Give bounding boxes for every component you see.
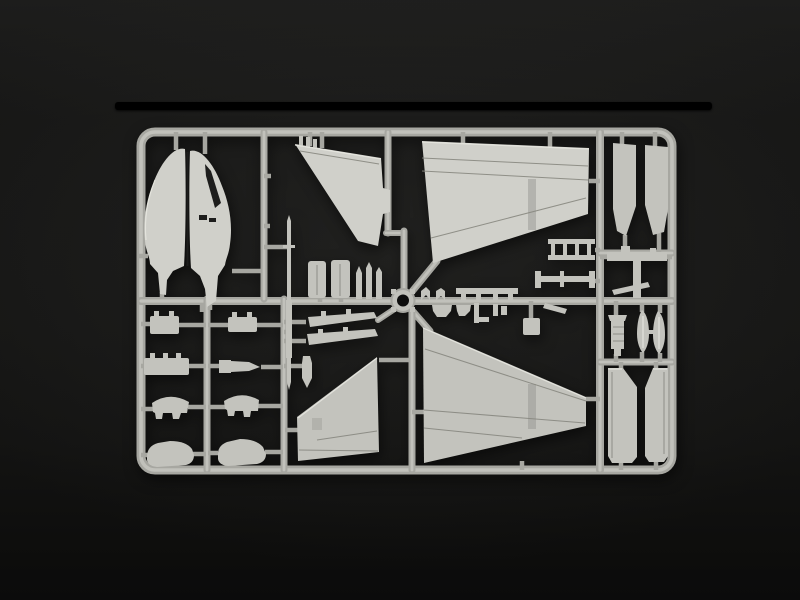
box-tab	[247, 312, 252, 317]
box-tab	[150, 353, 155, 358]
tank-connector	[648, 330, 654, 334]
center-ring-hole	[397, 295, 409, 307]
gate-tooth	[299, 136, 303, 146]
pod-half	[147, 441, 194, 467]
model-kit-sprue	[0, 0, 800, 600]
canopy-shell	[152, 397, 189, 419]
flap-actuator-recess	[528, 179, 536, 230]
rail-strip	[456, 288, 518, 294]
pitot-sleeve	[286, 300, 292, 358]
antenna-pin	[356, 266, 362, 299]
box-tab	[163, 353, 168, 358]
clamp-fitting	[456, 305, 471, 316]
long-equipment-box	[144, 358, 189, 375]
missile-body	[219, 360, 231, 373]
plate-tab	[343, 327, 348, 332]
nose-vent-slot	[209, 218, 216, 222]
antenna-pin	[366, 262, 372, 299]
intake-side-panel-right	[645, 145, 668, 235]
stabilator-plate	[307, 329, 378, 345]
ring-nub	[391, 307, 396, 312]
missile-rail-rung	[560, 271, 564, 287]
intake-trunk-right	[645, 368, 668, 462]
missile-rail-bar	[535, 276, 595, 282]
canopy-shell	[224, 395, 259, 417]
pod-half	[218, 439, 266, 466]
box-tab	[154, 311, 159, 316]
pitot-crossbar	[283, 245, 295, 248]
ring-nub	[391, 289, 396, 294]
bullet-fairing	[302, 356, 312, 388]
wing-detail-square	[312, 418, 322, 430]
ladder-rung	[563, 239, 567, 260]
ring-nub	[410, 289, 415, 294]
nozzle-foot	[614, 349, 621, 356]
plate-tab	[321, 311, 326, 317]
gate-tooth	[300, 437, 304, 448]
photo-backdrop	[0, 0, 800, 600]
gate-tooth	[313, 139, 317, 148]
small-pin-fitting	[493, 304, 498, 316]
antenna-pin	[376, 267, 382, 299]
nozzle-body	[611, 321, 624, 349]
flap-actuator-recess	[528, 384, 536, 429]
ladder-rung	[587, 239, 591, 260]
intake-side-panel-left	[613, 143, 636, 236]
stabilator-plate	[308, 312, 377, 327]
equipment-box	[523, 318, 540, 335]
cross-bar-vane	[612, 282, 650, 295]
cross-bar-bump	[650, 248, 656, 253]
rail-strip-foot	[476, 294, 481, 300]
l-bracket	[474, 317, 489, 322]
gate-tooth	[306, 137, 310, 147]
box-tab	[232, 312, 237, 317]
small-pin-fitting	[501, 306, 507, 315]
ladder-rung	[575, 239, 579, 260]
equipment-box	[150, 316, 179, 334]
plate-tab	[318, 329, 323, 334]
ring-nub	[410, 307, 415, 312]
box-tab	[169, 311, 174, 316]
nose-vent-slot	[199, 215, 207, 220]
fuselage-half-left	[144, 149, 185, 295]
cross-bar-stem	[633, 260, 641, 298]
cross-bar-bump	[621, 246, 630, 253]
rail-strip-foot	[461, 294, 466, 300]
stabilizer-cross-bar	[607, 252, 667, 261]
nozzle-flange	[608, 315, 627, 321]
missile-nose	[231, 361, 260, 372]
rail-strip-foot	[493, 294, 498, 300]
clamp-fitting	[432, 305, 452, 317]
plate-tab	[346, 309, 351, 315]
ladder-rung	[551, 239, 555, 260]
wing-panel-lower-right	[423, 327, 586, 463]
box-tab	[176, 353, 181, 358]
equipment-box	[228, 317, 257, 332]
wing-panel-upper-left	[295, 144, 390, 246]
rail-strip-foot	[508, 294, 513, 300]
